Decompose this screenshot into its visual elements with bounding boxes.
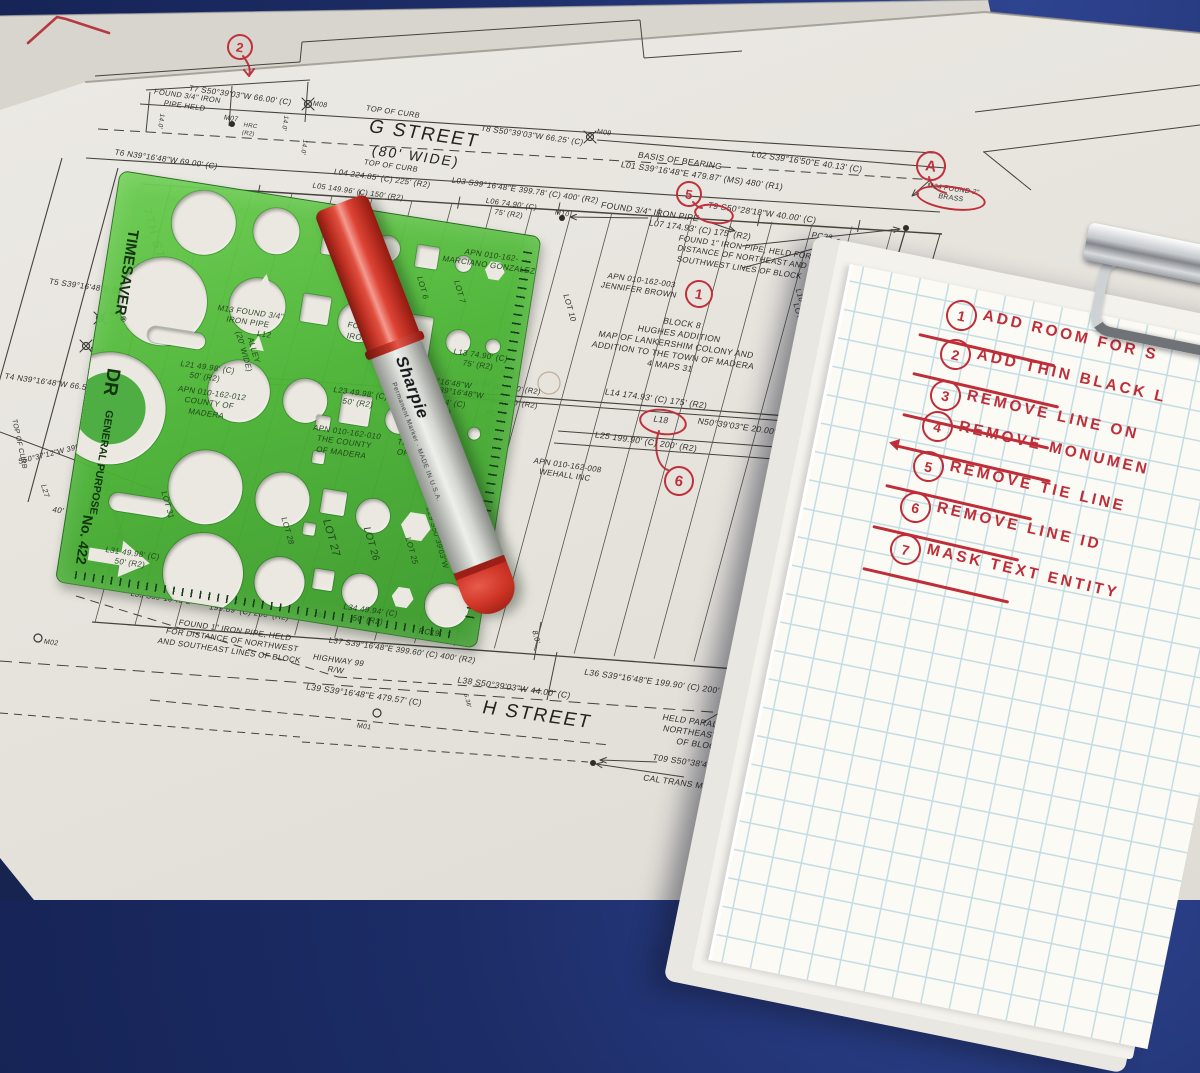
- handwritten-notes: 1ADD ROOM FOR S2ADD THIN BLACK L3REMOVE …: [0, 0, 1200, 900]
- note-number-4: 4: [919, 408, 956, 445]
- note-number-2: 2: [937, 336, 974, 373]
- photo-canvas: { "surveyor": { "title": "SURVEYOR'", "l…: [0, 0, 1200, 900]
- note-underline-arrow: [882, 435, 900, 450]
- note-number-1: 1: [943, 297, 980, 334]
- note-number-5: 5: [910, 448, 947, 485]
